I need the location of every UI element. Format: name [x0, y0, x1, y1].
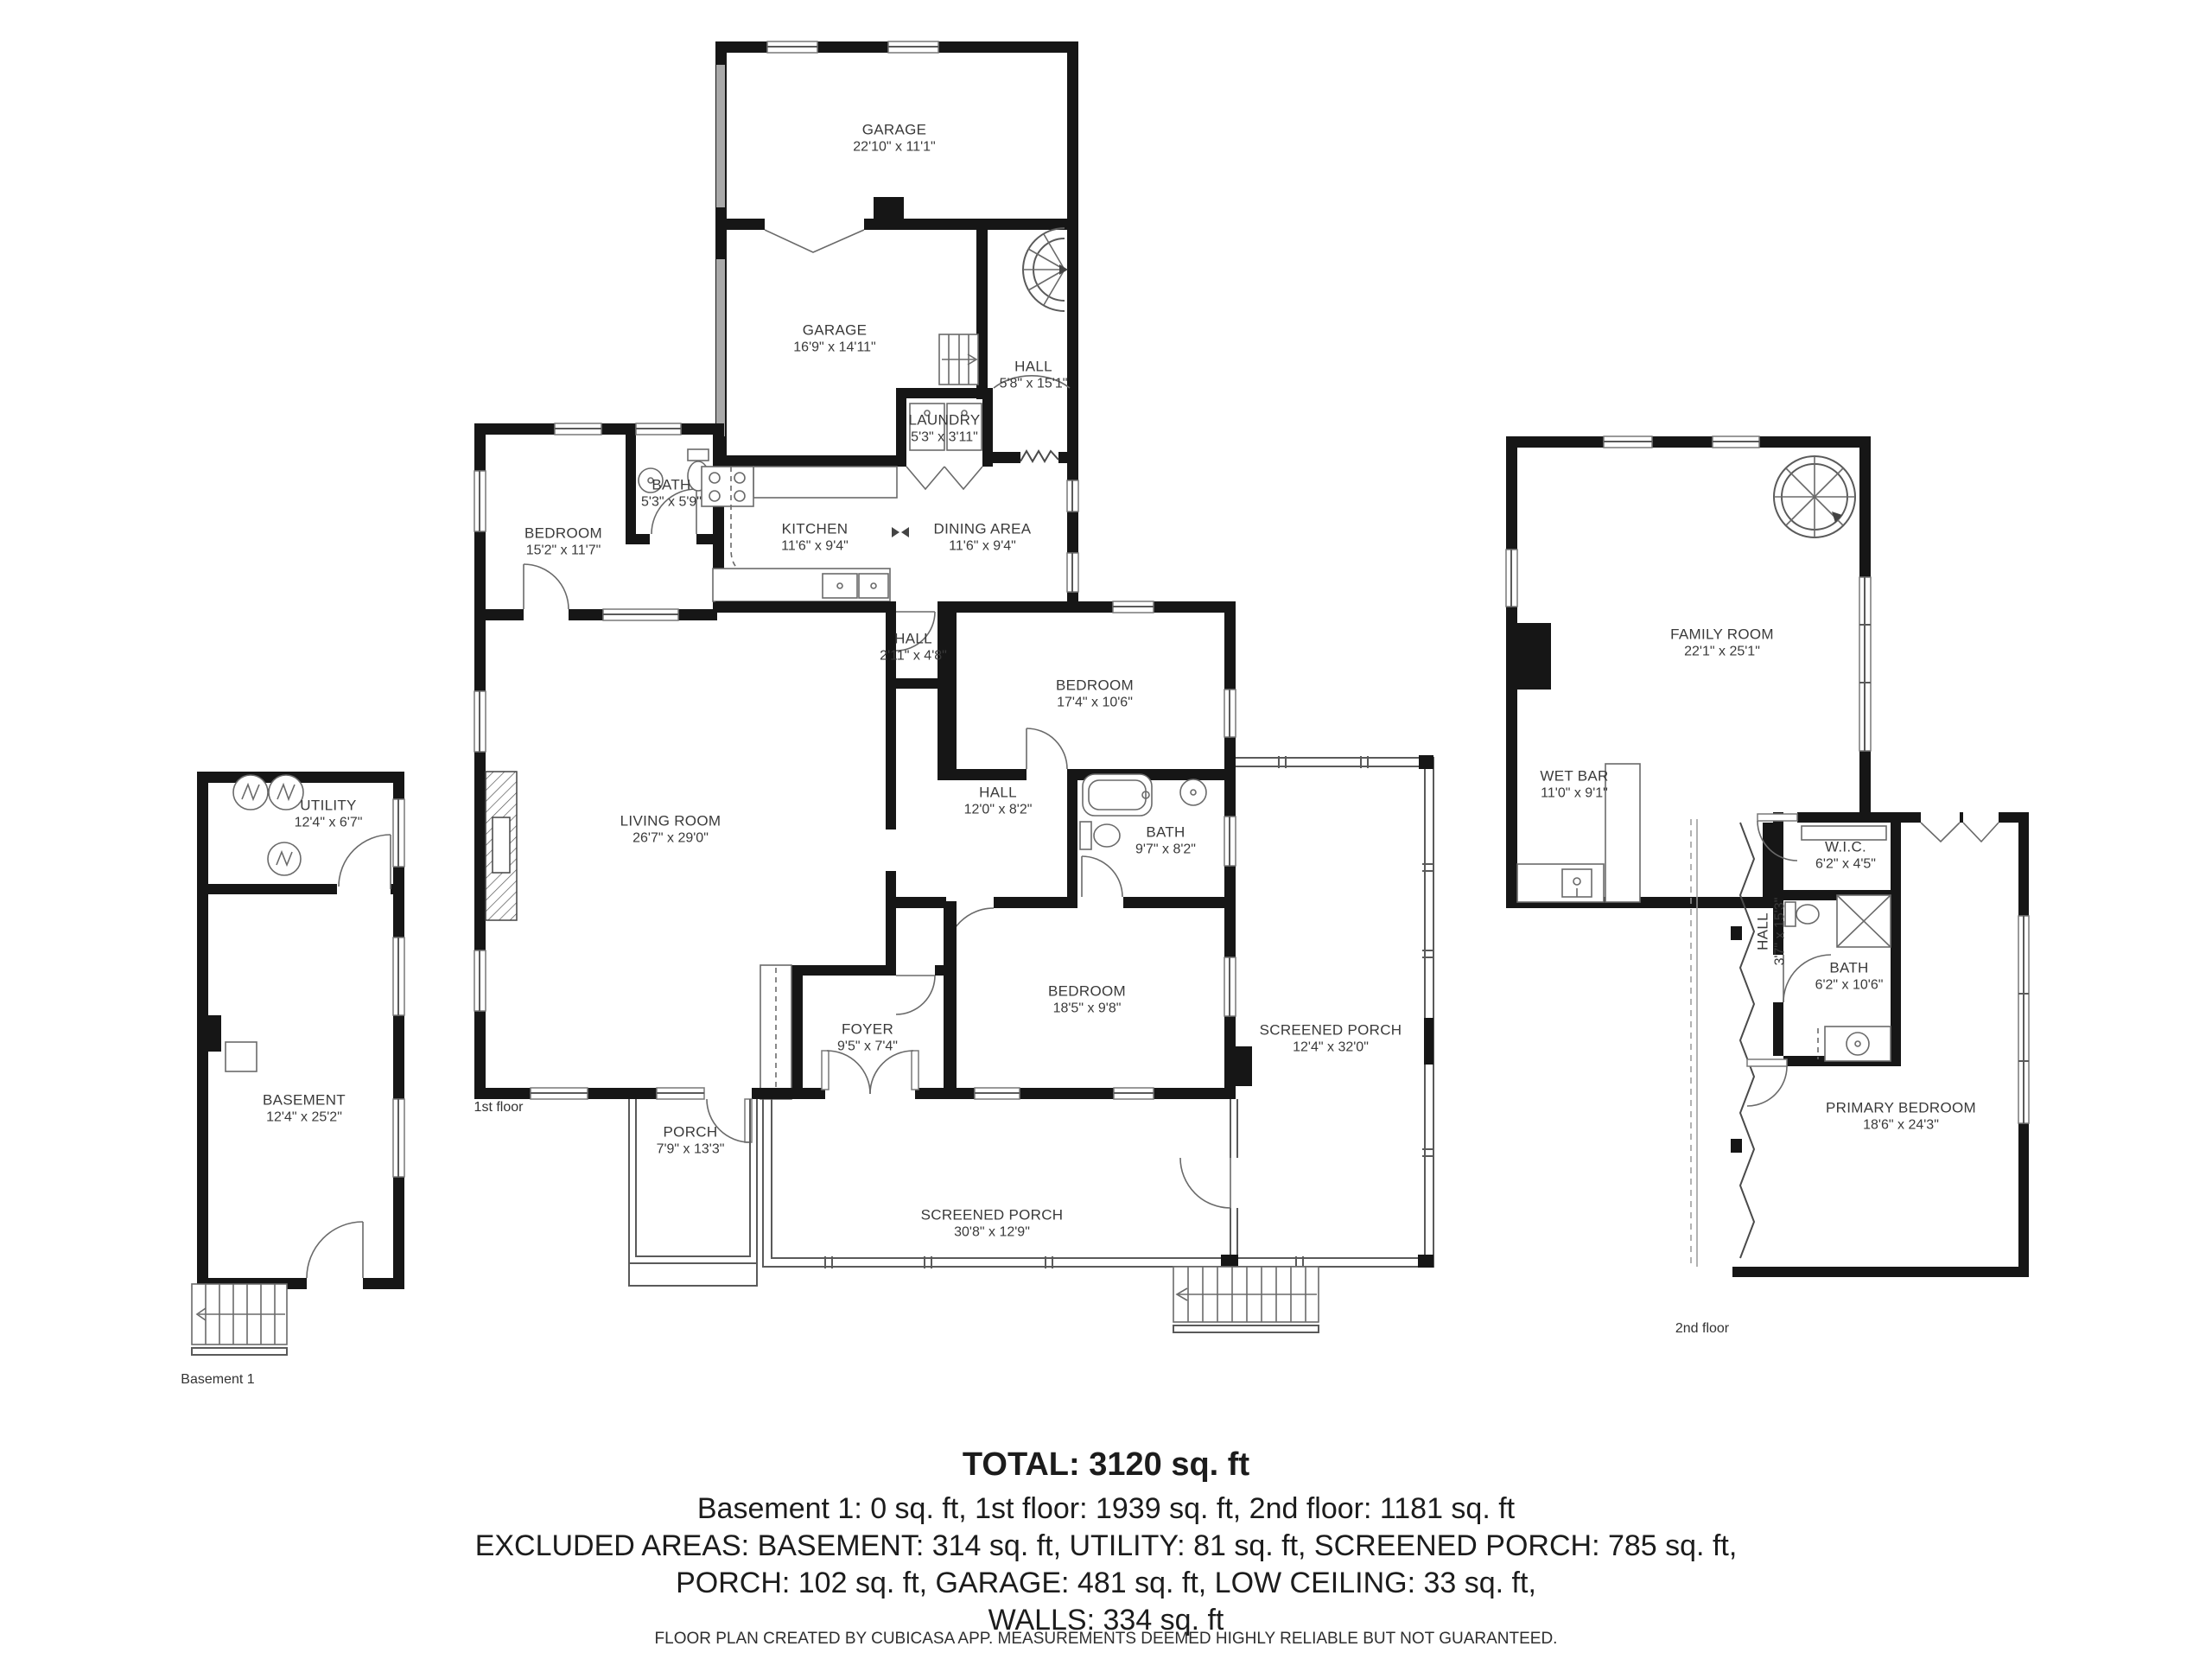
low-ceiling-marker: [1020, 451, 1058, 461]
fireplace-icon: [486, 772, 517, 920]
excluded-areas-line-2: PORCH: 102 sq. ft, GARAGE: 481 sq. ft, L…: [0, 1565, 2212, 1602]
shower-icon: [1837, 895, 1891, 947]
room-label-wet-bar: WET BAR11'0" x 9'1": [1540, 766, 1608, 802]
room-label-screened-porch-east: SCREENED PORCH12'4" x 32'0": [1260, 1020, 1402, 1056]
room-label-bath-main: BATH9'7" x 8'2": [1135, 823, 1196, 858]
excluded-areas-line-1: EXCLUDED AREAS: BASEMENT: 314 sq. ft, UT…: [0, 1528, 2212, 1565]
summary-block: TOTAL: 3120 sq. ft Basement 1: 0 sq. ft,…: [0, 1446, 2212, 1639]
closet-door-icon: [1921, 823, 1999, 842]
room-label-family-room: FAMILY ROOM22'1" x 25'1": [1670, 625, 1774, 660]
garage-window-strip: [716, 259, 725, 436]
basement-door-icon: [307, 1222, 363, 1289]
floorplan-page: Basement 1 1st floor 2nd floor UTILITY12…: [0, 0, 2212, 1659]
basement-windows: [393, 799, 404, 1177]
chimney: [1506, 623, 1551, 690]
water-heater-icon: [233, 775, 303, 875]
bedroom-door-icon: [524, 564, 569, 609]
porch-divider-door-icon: [1180, 1158, 1230, 1208]
room-label-dining-area: DINING AREA11'6" x 9'4": [934, 519, 1032, 555]
room-label-wic: W.I.C.6'2" x 4'5": [1815, 837, 1876, 873]
basement-plan: [192, 772, 404, 1355]
sump-box-icon: [226, 1042, 257, 1071]
wall-joint-marker: [892, 527, 909, 537]
first-floor-plan: [474, 41, 1434, 1332]
room-label-hall-stair: HALL5'8" x 15'1": [1000, 357, 1068, 392]
caption-first-floor: 1st floor: [474, 1100, 524, 1116]
room-label-bath-upper: BATH6'2" x 10'6": [1815, 958, 1884, 994]
stove-icon: [702, 467, 753, 506]
room-label-primary-bedroom: PRIMARY BEDROOM18'6" x 24'3": [1826, 1098, 1976, 1134]
caption-basement: Basement 1: [181, 1372, 254, 1388]
bedroom-mid-door-icon: [1027, 728, 1067, 769]
room-label-basement: BASEMENT12'4" x 25'2": [263, 1090, 346, 1126]
sink-icon: [1818, 1027, 1891, 1061]
second-floor-plan: [1506, 436, 2029, 1277]
basement-stairs-icon: [192, 1284, 287, 1355]
garage-window-strip: [716, 65, 725, 207]
kitchen-sink-icon: [823, 574, 888, 598]
primary-door-icon: [1747, 1059, 1787, 1106]
floor-areas-line: Basement 1: 0 sq. ft, 1st floor: 1939 sq…: [0, 1491, 2212, 1528]
bathtub-icon: [1083, 774, 1152, 816]
room-label-garage-lower: GARAGE16'9" x 14'11": [793, 321, 875, 356]
room-label-kitchen: KITCHEN11'6" x 9'4": [781, 519, 849, 555]
closet-icon: [760, 965, 791, 1099]
total-area: TOTAL: 3120 sq. ft: [0, 1446, 2212, 1484]
room-label-foyer: FOYER9'5" x 7'4": [837, 1020, 898, 1055]
foyer-door-icon: [896, 976, 935, 1014]
chimney-stub: [874, 197, 904, 220]
screen-post: [1221, 755, 1433, 1268]
caption-second-floor: 2nd floor: [1675, 1321, 1729, 1337]
room-label-porch: PORCH7'9" x 13'3": [657, 1122, 725, 1158]
room-label-laundry: LAUNDRY5'3" x 3'11": [908, 410, 980, 446]
room-label-living-room: LIVING ROOM26'7" x 29'0": [620, 811, 721, 847]
garage-door-icon: [765, 230, 864, 252]
spiral-staircase-icon: [1774, 456, 1855, 537]
porch-stairs-icon: [1173, 1267, 1319, 1332]
spiral-staircase-icon: [1023, 228, 1068, 311]
room-label-screened-porch-south: SCREENED PORCH30'8" x 12'9": [921, 1205, 1064, 1241]
room-label-bedroom-south: BEDROOM18'5" x 9'8": [1048, 982, 1126, 1017]
room-label-bath-small: BATH5'3" x 5'9": [641, 475, 702, 511]
room-label-hall-small: HALL2'11" x 4'8": [880, 629, 947, 664]
sink-icon: [1180, 779, 1206, 805]
double-door-icon: [822, 1051, 918, 1094]
bath-main-door-icon: [1082, 856, 1122, 897]
room-label-bedroom-mid: BEDROOM17'4" x 10'6": [1056, 676, 1134, 711]
room-label-garage-upper: GARAGE22'10" x 11'1": [853, 120, 935, 156]
stair-steps-icon: [939, 334, 978, 385]
room-label-utility: UTILITY12'4" x 6'7": [295, 796, 363, 831]
disclaimer-text: FLOOR PLAN CREATED BY CUBICASA APP. MEAS…: [0, 1630, 2212, 1649]
utility-door-icon: [339, 835, 391, 889]
room-label-hall-main: HALL12'0" x 8'2": [964, 783, 1033, 818]
toilet-icon: [1785, 902, 1819, 926]
room-label-hall-upper: HALL3'7" x 15'3": [1753, 898, 1789, 966]
toilet-icon: [1080, 822, 1120, 849]
laundry-door-icon: [906, 467, 982, 489]
room-label-bedroom-west: BEDROOM15'2" x 11'7": [524, 524, 602, 559]
low-ceiling-wall: [1740, 823, 1754, 1258]
